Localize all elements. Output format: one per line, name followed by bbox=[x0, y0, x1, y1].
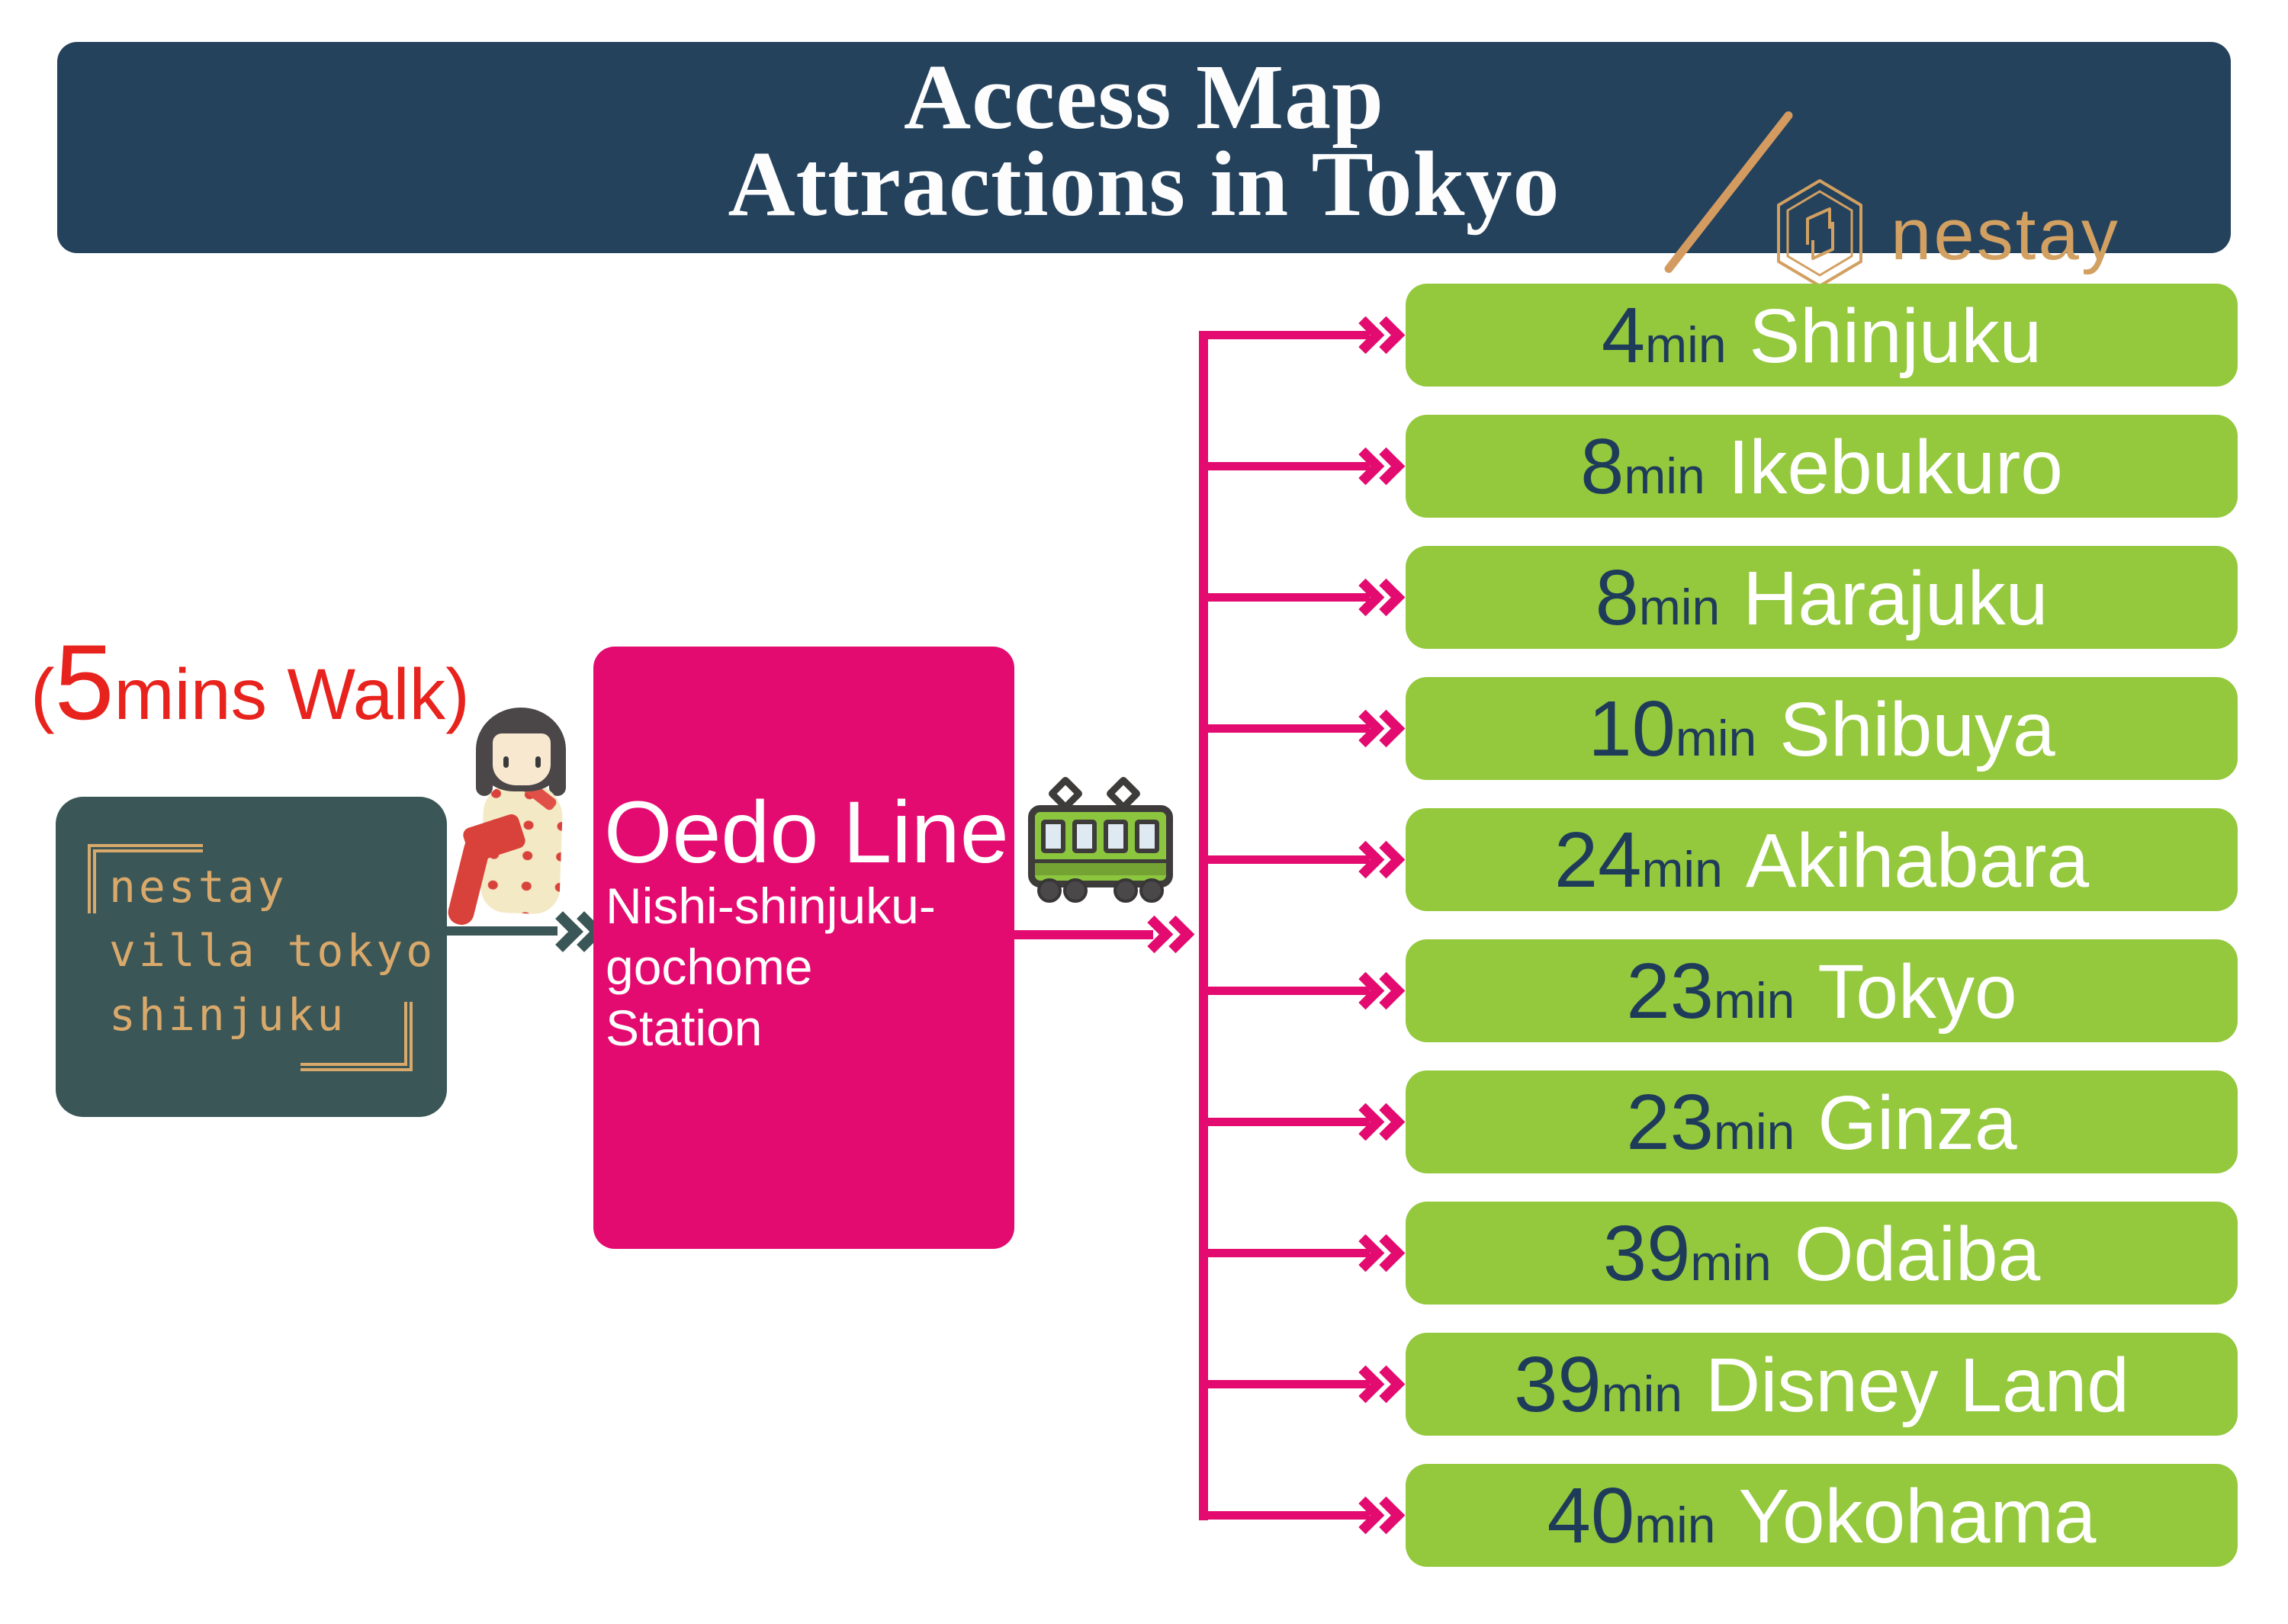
travel-time-unit: min bbox=[1634, 1497, 1715, 1553]
arrow-chevron-icon bbox=[1367, 1497, 1405, 1534]
travel-time-unit: min bbox=[1624, 448, 1705, 504]
destination-row: 4minShinjuku bbox=[1208, 284, 2238, 387]
branch-line bbox=[1208, 462, 1370, 470]
station-box: Oedo Line Nishi-shinjuku- gochome Statio… bbox=[593, 647, 1014, 1249]
arrow-chevron-icon bbox=[1367, 972, 1405, 1009]
travel-time-unit: min bbox=[1714, 1103, 1795, 1160]
branch-line bbox=[1208, 987, 1370, 995]
travel-time: 39 bbox=[1603, 1209, 1691, 1297]
brand-name: nestay bbox=[1891, 193, 2120, 277]
destination-name: Shinjuku bbox=[1750, 294, 2042, 379]
access-map-infographic: Access Map Attractions in Tokyo nestay (… bbox=[0, 0, 2288, 1624]
route-trunk-line bbox=[1199, 331, 1208, 1520]
destination-bar: 24minAkihabara bbox=[1406, 808, 2238, 911]
arrow-chevron-icon bbox=[1367, 841, 1405, 878]
travel-time-unit: min bbox=[1676, 710, 1756, 766]
travel-time: 23 bbox=[1626, 947, 1714, 1035]
destination-name: Odaiba bbox=[1795, 1212, 2040, 1297]
arrow-chevron-icon bbox=[1367, 710, 1405, 747]
origin-name-line-2: villa tokyo bbox=[109, 919, 435, 983]
origin-name-line-1: nestay bbox=[109, 855, 435, 919]
origin-name-line-3: shinjuku bbox=[109, 983, 435, 1047]
destination-name: Ikebukuro bbox=[1728, 425, 2063, 510]
arrow-chevron-icon bbox=[1367, 1103, 1405, 1141]
travel-time: 39 bbox=[1514, 1340, 1602, 1428]
destination-row: 8minIkebukuro bbox=[1208, 415, 2238, 518]
travel-time-unit: min bbox=[1714, 972, 1795, 1029]
origin-hotel-name: nestay villa tokyo shinjuku bbox=[109, 855, 435, 1047]
destination-row: 40minYokohama bbox=[1208, 1464, 2238, 1567]
station-name: Nishi-shinjuku- gochome Station bbox=[606, 875, 936, 1058]
branch-line bbox=[1208, 1249, 1370, 1257]
travel-time: 8 bbox=[1580, 422, 1624, 510]
travel-time: 8 bbox=[1595, 554, 1639, 641]
travel-time-unit: min bbox=[1639, 579, 1720, 635]
destination-row: 10minShibuya bbox=[1208, 677, 2238, 780]
branch-line bbox=[1208, 1118, 1370, 1126]
travel-time: 10 bbox=[1588, 685, 1676, 772]
station-name-line-2: gochome bbox=[606, 936, 936, 997]
travel-time: 24 bbox=[1554, 816, 1642, 903]
destination-row: 39minOdaiba bbox=[1208, 1202, 2238, 1305]
station-name-line-3: Station bbox=[606, 997, 936, 1058]
travel-time-unit: min bbox=[1690, 1234, 1771, 1291]
arrow-chevron-icon bbox=[1367, 1234, 1405, 1272]
header-banner: Access Map Attractions in Tokyo nestay bbox=[57, 42, 2231, 253]
walk-time-note: (5mins Walk) bbox=[31, 625, 470, 752]
destination-name: Shibuya bbox=[1779, 687, 2055, 772]
destination-bar: 23minTokyo bbox=[1406, 939, 2238, 1042]
branch-line bbox=[1208, 1511, 1370, 1520]
destination-name: Akihabara bbox=[1746, 818, 2089, 903]
arrow-chevron-icon bbox=[1367, 448, 1405, 485]
branch-line bbox=[1208, 724, 1370, 733]
destination-row: 39minDisney Land bbox=[1208, 1333, 2238, 1436]
arrow-chevron-icon bbox=[1157, 916, 1194, 953]
walk-arrow-line bbox=[439, 926, 558, 936]
destination-bar: 8minHarajuku bbox=[1406, 546, 2238, 649]
arrow-chevron-icon bbox=[1367, 579, 1405, 616]
destination-row: 8minHarajuku bbox=[1208, 546, 2238, 649]
destination-name: Yokohama bbox=[1739, 1474, 2097, 1559]
travel-time-unit: min bbox=[1641, 841, 1722, 897]
kokeshi-doll-icon bbox=[459, 708, 580, 925]
route-line bbox=[1011, 930, 1153, 939]
destination-bar: 23minGinza bbox=[1406, 1070, 2238, 1173]
walk-open-paren: ( bbox=[31, 654, 55, 735]
destination-name: Disney Land bbox=[1705, 1343, 2129, 1428]
destination-row: 24minAkihabara bbox=[1208, 808, 2238, 911]
branch-line bbox=[1208, 593, 1370, 602]
destination-bar: 4minShinjuku bbox=[1406, 284, 2238, 387]
destination-bar: 39minDisney Land bbox=[1406, 1333, 2238, 1436]
travel-time: 23 bbox=[1626, 1078, 1714, 1166]
destination-row: 23minGinza bbox=[1208, 1070, 2238, 1173]
train-icon bbox=[1028, 779, 1173, 905]
destination-row: 23minTokyo bbox=[1208, 939, 2238, 1042]
nestay-logo-icon bbox=[1773, 178, 1866, 289]
destination-name: Harajuku bbox=[1743, 556, 2048, 641]
travel-time: 4 bbox=[1602, 291, 1645, 379]
origin-hotel-box: nestay villa tokyo shinjuku bbox=[56, 797, 447, 1117]
branch-line bbox=[1208, 331, 1370, 339]
walk-minutes: 5 bbox=[55, 622, 114, 742]
arrow-chevron-icon bbox=[1367, 316, 1405, 354]
branch-line bbox=[1208, 855, 1370, 864]
destination-name: Ginza bbox=[1817, 1080, 2016, 1166]
destination-name: Tokyo bbox=[1817, 949, 2016, 1035]
destination-bar: 10minShibuya bbox=[1406, 677, 2238, 780]
walk-note-text: mins Walk) bbox=[114, 654, 470, 735]
branch-line bbox=[1208, 1380, 1370, 1388]
destination-bar: 8minIkebukuro bbox=[1406, 415, 2238, 518]
station-name-line-1: Nishi-shinjuku- bbox=[606, 875, 936, 936]
arrow-chevron-icon bbox=[1367, 1366, 1405, 1403]
travel-time: 40 bbox=[1547, 1472, 1635, 1559]
travel-time-unit: min bbox=[1645, 316, 1726, 373]
destination-bar: 40minYokohama bbox=[1406, 1464, 2238, 1567]
title-line-1: Access Map bbox=[57, 54, 2231, 141]
travel-time-unit: min bbox=[1602, 1366, 1682, 1422]
destination-bar: 39minOdaiba bbox=[1406, 1202, 2238, 1305]
train-line-name: Oedo Line bbox=[604, 782, 1009, 883]
